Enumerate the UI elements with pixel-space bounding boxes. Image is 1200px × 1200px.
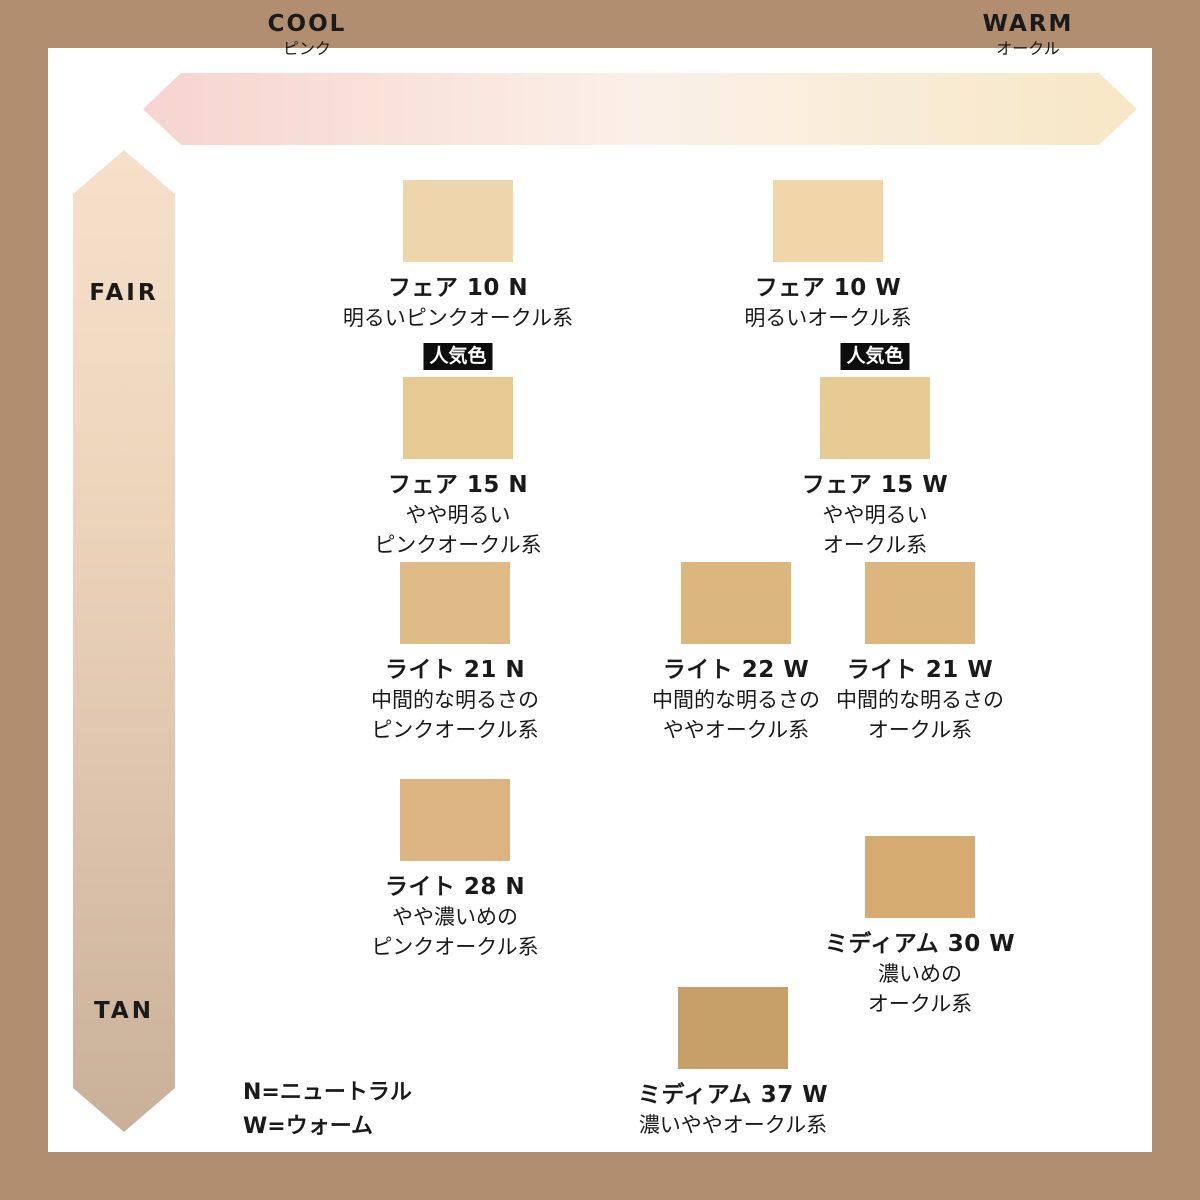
shade-desc-line: やや明るい [288, 500, 628, 530]
shade-desc: 明るいオークル系 [658, 303, 998, 333]
axis-label-cool: COOL ピンク [227, 10, 387, 60]
axis-label-fair: FAIR [73, 280, 175, 306]
popular-badge: 人気色 [840, 343, 909, 370]
axis-label-tan: TAN [73, 998, 175, 1024]
key-line-warm: W=ウォーム [243, 1110, 412, 1144]
shade-swatch [865, 836, 975, 918]
shade-desc-line: やや濃いめの [285, 902, 625, 932]
shade-name: フェア 10 N [288, 273, 628, 303]
shade-name: フェア 10 W [658, 273, 998, 303]
key-line-neutral: N=ニュートラル [243, 1076, 412, 1110]
undertone-key: N=ニュートラル W=ウォーム [243, 1076, 412, 1144]
popular-badge: 人気色 [423, 343, 492, 370]
shade-card: ライト 21 W中間的な明るさのオークル系 [750, 562, 1090, 745]
shade-swatch [403, 377, 513, 459]
shade-name: フェア 15 W [705, 470, 1045, 500]
shade-desc: 中間的な明るさのオークル系 [750, 685, 1090, 745]
shade-name: ライト 21 W [750, 655, 1090, 685]
shade-swatch [773, 180, 883, 262]
shade-swatch [820, 377, 930, 459]
shade-swatch [865, 562, 975, 644]
shade-desc: やや明るいピンクオークル系 [288, 500, 628, 560]
shade-desc-line: ピンクオークル系 [285, 932, 625, 962]
shade-name: フェア 15 N [288, 470, 628, 500]
shade-desc: 明るいピンクオークル系 [288, 303, 628, 333]
shade-name: ライト 28 N [285, 872, 625, 902]
shade-desc-line: オークル系 [750, 715, 1090, 745]
shade-swatch [400, 779, 510, 861]
shade-swatch [403, 180, 513, 262]
shade-desc: やや濃いめのピンクオークル系 [285, 902, 625, 962]
shade-card: 人気色フェア 15 Wやや明るいオークル系 [705, 377, 1045, 560]
cool-subtitle: ピンク [227, 38, 387, 60]
shade-card: フェア 10 N明るいピンクオークル系 [288, 180, 628, 333]
shade-swatch [400, 562, 510, 644]
shade-name: ミディアム 30 W [750, 929, 1090, 959]
shade-desc-line: 明るいオークル系 [658, 303, 998, 333]
shade-swatch [678, 987, 788, 1069]
cool-title: COOL [227, 10, 387, 38]
axis-label-warm: WARM オークル [948, 10, 1108, 60]
shade-desc-line: 中間的な明るさの [750, 685, 1090, 715]
shade-desc: やや明るいオークル系 [705, 500, 1045, 560]
shade-card: ライト 28 Nやや濃いめのピンクオークル系 [285, 779, 625, 962]
shade-desc-line: 明るいピンクオークル系 [288, 303, 628, 333]
shade-desc-line: オークル系 [705, 530, 1045, 560]
shade-name: ミディアム 37 W [563, 1080, 903, 1110]
shade-desc-line: 濃いややオークル系 [563, 1110, 903, 1140]
shade-card: 人気色フェア 15 Nやや明るいピンクオークル系 [288, 377, 628, 560]
warm-subtitle: オークル [948, 38, 1108, 60]
shade-desc-line: やや明るい [705, 500, 1045, 530]
shade-card: フェア 10 W明るいオークル系 [658, 180, 998, 333]
shade-chart: COOL ピンク WARM オークル FAIR TAN フェア 10 N明るいピ… [0, 0, 1200, 1200]
shade-desc: 濃いややオークル系 [563, 1110, 903, 1140]
shade-desc-line: 濃いめの [750, 959, 1090, 989]
warm-title: WARM [948, 10, 1108, 38]
cool-warm-axis-arrow [143, 73, 1137, 145]
shade-card: ミディアム 37 W濃いややオークル系 [563, 987, 903, 1140]
shade-desc-line: ピンクオークル系 [288, 530, 628, 560]
